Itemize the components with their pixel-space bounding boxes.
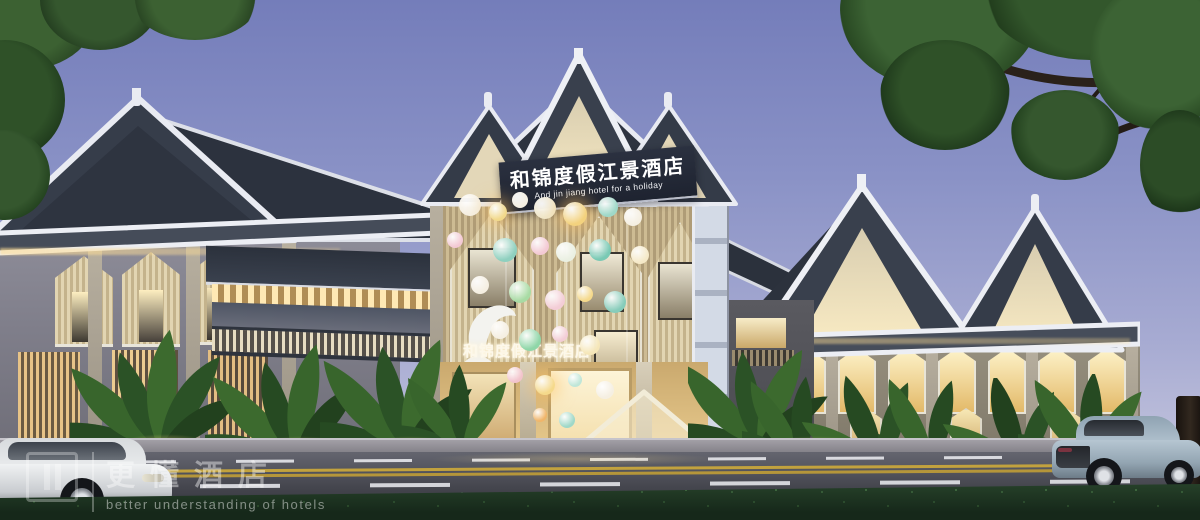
watermark: 更懂酒店 better understanding of hotels: [26, 452, 326, 512]
watermark-logo: [26, 452, 78, 502]
tower-window: [580, 252, 624, 312]
car-taillight: [1058, 448, 1072, 452]
tree-top-left: [0, 0, 300, 240]
entrance-light-reflection: [430, 452, 720, 466]
car-rear-window: [1084, 420, 1144, 436]
car-wheel-rim: [1171, 467, 1187, 483]
watermark-text-cn: 更懂酒店: [106, 452, 326, 494]
car-sports: [1052, 412, 1200, 492]
hotel-rendering-scene: 和锦度假江景酒店 And jin jiang hotel for a holid…: [0, 0, 1200, 520]
car-wheel-rim: [1094, 466, 1114, 486]
watermark-text-en: better understanding of hotels: [106, 497, 326, 512]
tree-top-right: [860, 0, 1200, 260]
